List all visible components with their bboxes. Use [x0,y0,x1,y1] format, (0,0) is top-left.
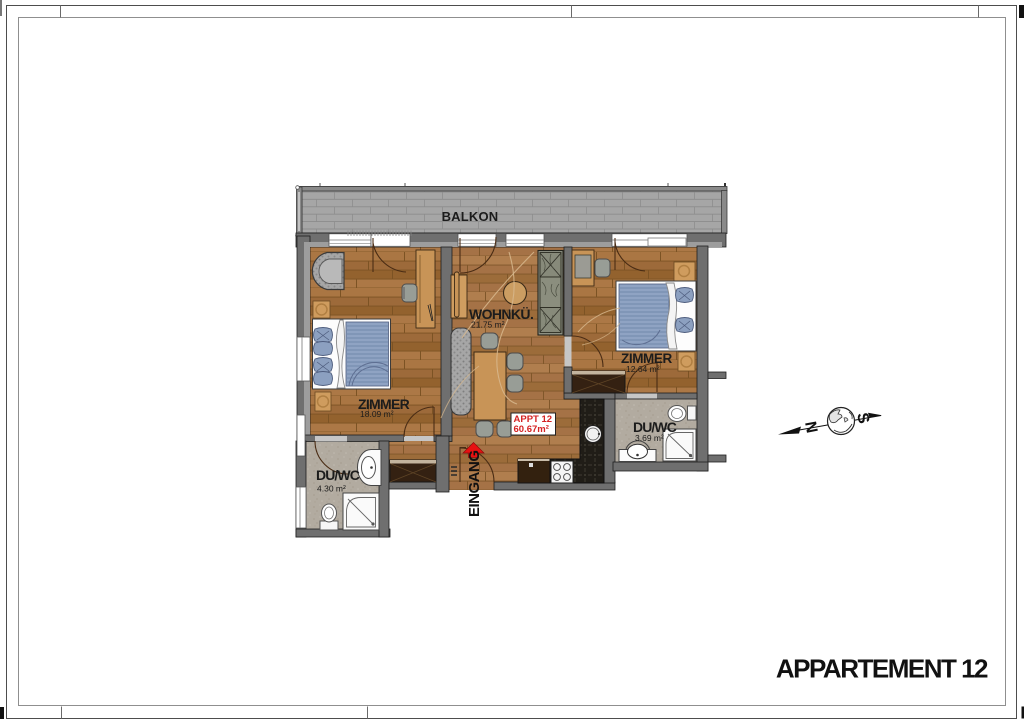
svg-text:4.30 m²: 4.30 m² [317,484,346,494]
svg-text:APPARTEMENT 12: APPARTEMENT 12 [776,654,988,684]
svg-text:18.09 m²: 18.09 m² [360,409,394,419]
svg-text:12.64 m²: 12.64 m² [626,364,660,374]
svg-text:DU/WC: DU/WC [316,467,360,483]
svg-text:60.67m²: 60.67m² [514,424,549,435]
svg-text:EINGANG: EINGANG [466,450,483,517]
svg-text:21.75 m²: 21.75 m² [471,320,505,330]
svg-text:3.69 m²: 3.69 m² [635,433,664,443]
svg-text:BALKON: BALKON [442,209,499,224]
